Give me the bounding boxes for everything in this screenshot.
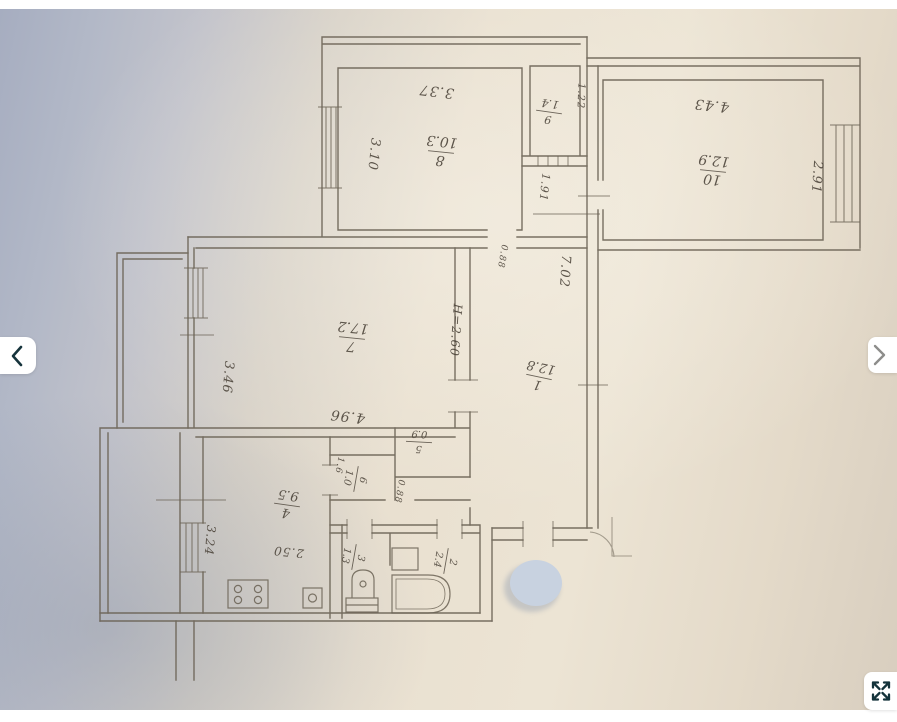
svg-text:1.91: 1.91 — [537, 173, 553, 203]
svg-text:2.50: 2.50 — [273, 543, 306, 560]
svg-text:2: 2 — [446, 557, 458, 566]
kitchen-stove-icon — [228, 580, 268, 608]
svg-text:9.5: 9.5 — [277, 486, 300, 504]
svg-text:0.88: 0.88 — [392, 479, 406, 504]
dimension-label: 3.24 — [202, 524, 219, 556]
room-label: 810.3 — [424, 131, 459, 169]
floorplan-photo: 810.391.41012.9717.2112.849.550.961.031.… — [0, 9, 897, 710]
dimension-label: 1.91 — [537, 173, 553, 203]
dimension-label: 3.37 — [418, 81, 455, 101]
chevron-right-icon — [871, 343, 889, 367]
dimension-label: 2.50 — [273, 543, 306, 560]
room-label: 50.9 — [405, 427, 432, 454]
dimension-label: 4.43 — [693, 95, 731, 115]
svg-text:2.4: 2.4 — [431, 550, 445, 569]
dimension-label: 4.96 — [329, 406, 367, 426]
svg-text:1.22: 1.22 — [575, 83, 587, 110]
svg-text:17.2: 17.2 — [337, 317, 370, 336]
dimension-label: 3.10 — [364, 137, 382, 171]
svg-text:7: 7 — [346, 338, 357, 355]
svg-text:0.88: 0.88 — [495, 244, 509, 269]
room-area-labels: 810.391.41012.9717.2112.849.550.961.031.… — [272, 95, 730, 576]
svg-text:4: 4 — [281, 504, 292, 520]
dimension-label: 2.91 — [808, 159, 825, 194]
svg-text:3: 3 — [354, 554, 366, 562]
svg-text:12.9: 12.9 — [698, 150, 731, 169]
svg-text:1.6: 1.6 — [333, 456, 346, 475]
dimension-label: 7.02 — [556, 254, 573, 288]
svg-text:1.3: 1.3 — [339, 547, 353, 565]
svg-text:9: 9 — [544, 113, 553, 127]
room-label: 49.5 — [272, 485, 302, 521]
dimension-label: 1.6 — [333, 456, 346, 475]
svg-text:3.46: 3.46 — [219, 360, 237, 394]
next-photo-button[interactable] — [868, 337, 897, 373]
svg-text:3.37: 3.37 — [418, 81, 455, 101]
svg-text:4.96: 4.96 — [329, 406, 367, 426]
floorplan-drawing: 810.391.41012.9717.2112.849.550.961.031.… — [0, 9, 897, 710]
svg-text:3.24: 3.24 — [202, 524, 219, 556]
svg-text:8: 8 — [435, 152, 446, 169]
svg-text:6: 6 — [356, 476, 368, 485]
room-label: 91.4 — [534, 95, 564, 127]
svg-text:4.43: 4.43 — [693, 95, 731, 115]
dimension-label: H=2.60 — [447, 302, 465, 357]
chevron-left-icon — [8, 344, 28, 368]
svg-text:2.91: 2.91 — [808, 159, 825, 194]
dimension-label: 0.88 — [495, 244, 509, 269]
previous-photo-button[interactable] — [0, 337, 36, 374]
bathtub-icon — [392, 575, 450, 613]
svg-text:12.8: 12.8 — [525, 356, 556, 377]
room-label: 717.2 — [335, 317, 370, 355]
dimension-label: 0.88 — [392, 479, 406, 504]
svg-text:10: 10 — [702, 170, 721, 188]
svg-text:0.9: 0.9 — [411, 428, 428, 440]
expand-arrows-icon — [868, 677, 894, 705]
entrance-door-swing — [590, 517, 632, 557]
room-label: 1012.9 — [696, 150, 731, 188]
svg-text:1: 1 — [532, 376, 543, 392]
svg-text:5: 5 — [415, 443, 422, 454]
kitchen-sink-icon — [303, 588, 322, 608]
svg-text:10.3: 10.3 — [426, 131, 459, 150]
room-label: 112.8 — [522, 356, 557, 394]
svg-text:3.10: 3.10 — [364, 137, 382, 171]
fullscreen-button[interactable] — [864, 672, 897, 710]
watermark-dot — [504, 560, 562, 612]
dimension-label: 1.22 — [575, 83, 587, 110]
room-label: 22.4 — [430, 546, 460, 576]
walls — [100, 37, 860, 680]
dimension-ticks — [156, 156, 610, 547]
dimension-label: 3.46 — [219, 360, 237, 394]
toilet-icon — [346, 570, 378, 612]
svg-text:H=2.60: H=2.60 — [447, 302, 465, 357]
svg-text:1.4: 1.4 — [541, 96, 560, 111]
washbasin-icon — [392, 548, 418, 570]
svg-text:7.02: 7.02 — [556, 254, 573, 288]
